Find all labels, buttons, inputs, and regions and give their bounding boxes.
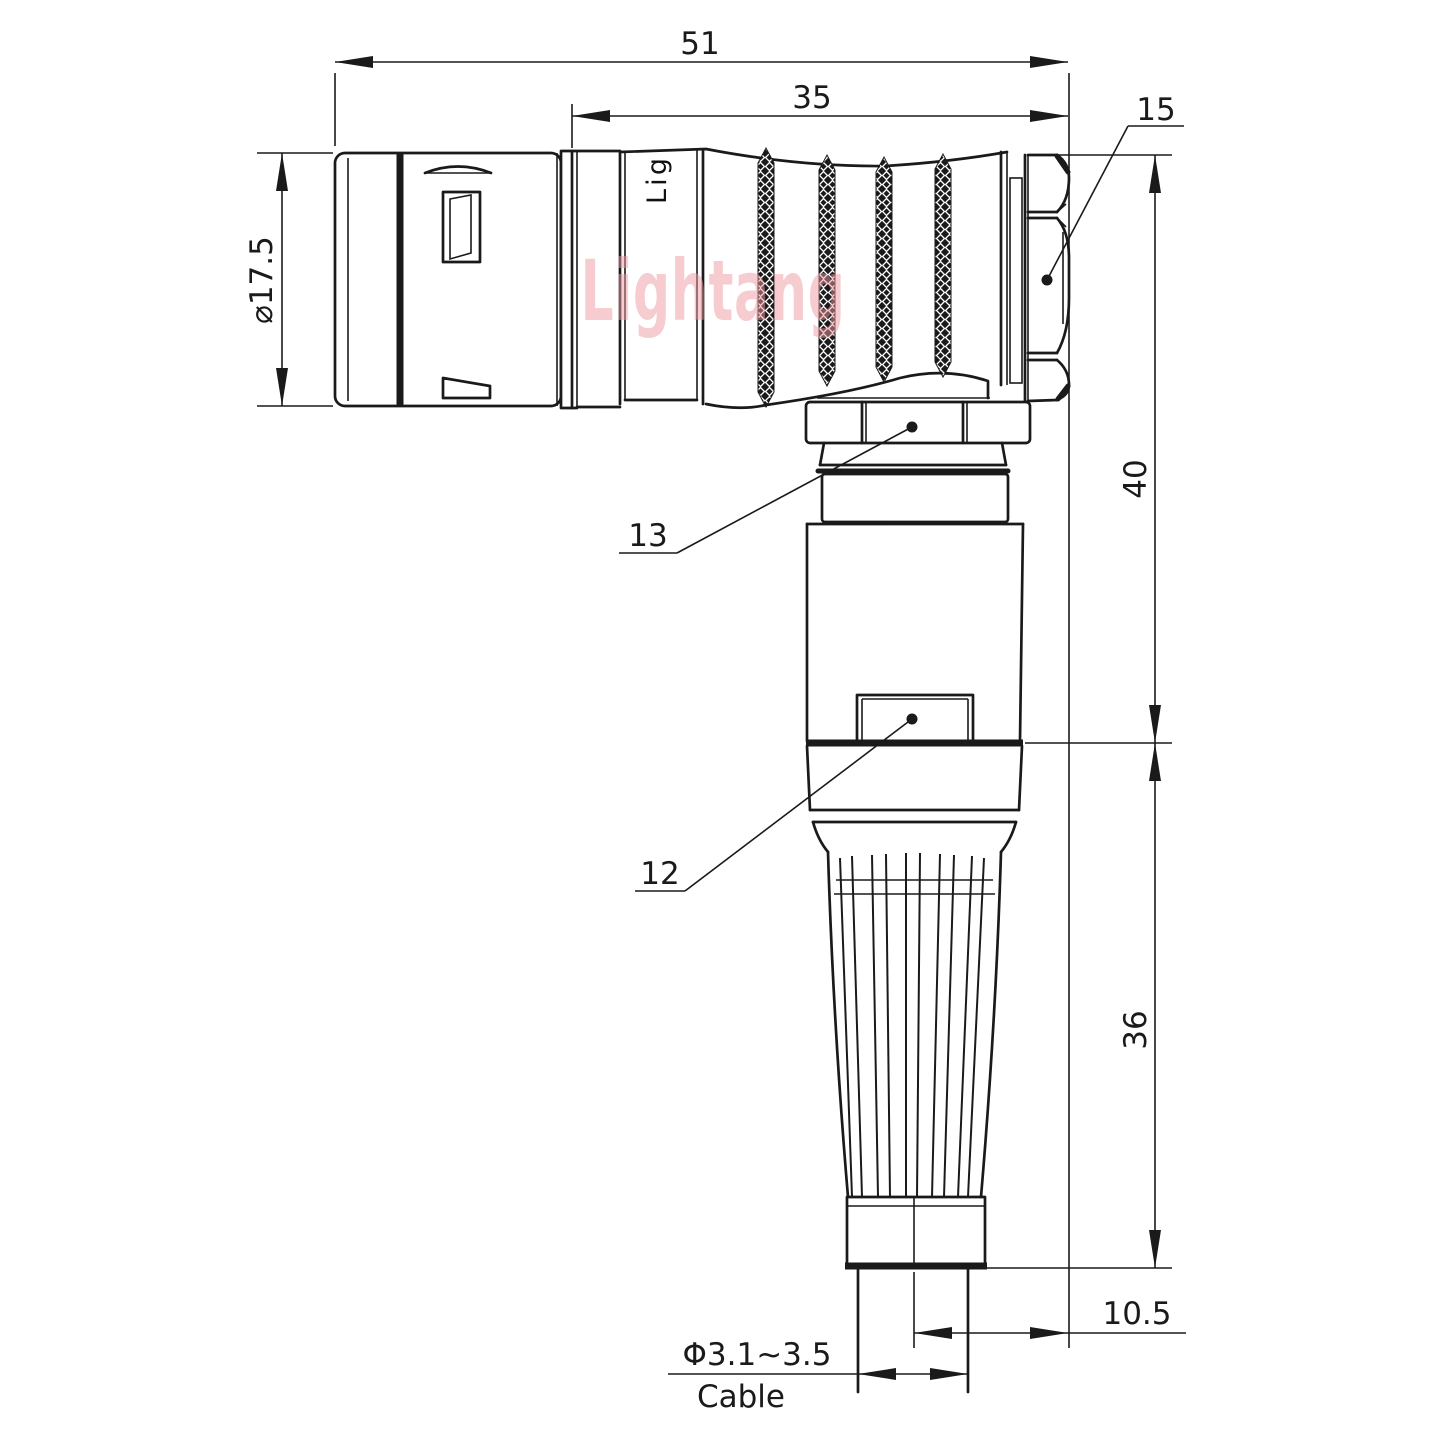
dim-rear-length-text: 35	[792, 80, 831, 116]
label-hex-nut-15-text: 15	[1136, 92, 1175, 128]
upper-body-section	[822, 474, 1008, 522]
strain-relief-ribs	[834, 853, 995, 1197]
strain-relief	[807, 746, 1022, 1267]
dim-cable-diameter: Φ3.1~3.5 Cable	[668, 1337, 968, 1415]
elbow-curve	[766, 373, 988, 405]
dim-upper-height-text: 40	[1118, 459, 1154, 498]
dim-cable-diameter-text: Φ3.1~3.5	[683, 1337, 832, 1373]
dim-rear-length: 35	[572, 80, 1068, 148]
dim-overall-length-text: 51	[680, 26, 719, 62]
cable-caption-text: Cable	[697, 1379, 785, 1415]
dim-cable-offset: 10.5	[914, 1272, 1186, 1348]
label-coupling-nut-13-text: 13	[628, 518, 667, 554]
barrel-flange	[561, 151, 572, 408]
dim-front-diameter-text: ⌀17.5	[244, 236, 280, 324]
technical-drawing-page: Lig	[0, 0, 1440, 1440]
coupling-nut	[806, 402, 1030, 443]
connector-body	[806, 524, 1023, 743]
cable-collar	[847, 1197, 985, 1267]
watermark-text: Lightang	[581, 242, 846, 340]
plug-barrel	[335, 151, 572, 408]
connector-drawing: Lig	[0, 0, 1440, 1440]
dim-front-diameter: ⌀17.5	[244, 153, 333, 406]
dim-lower-height-text: 36	[1118, 1010, 1154, 1049]
brand-engraving-text: Lig	[642, 158, 673, 204]
dim-upper-height: 40	[1025, 155, 1172, 743]
dim-cable-offset-text: 10.5	[1102, 1296, 1171, 1332]
label-body-12-text: 12	[640, 856, 679, 892]
coupling-nut-stack	[806, 402, 1030, 522]
